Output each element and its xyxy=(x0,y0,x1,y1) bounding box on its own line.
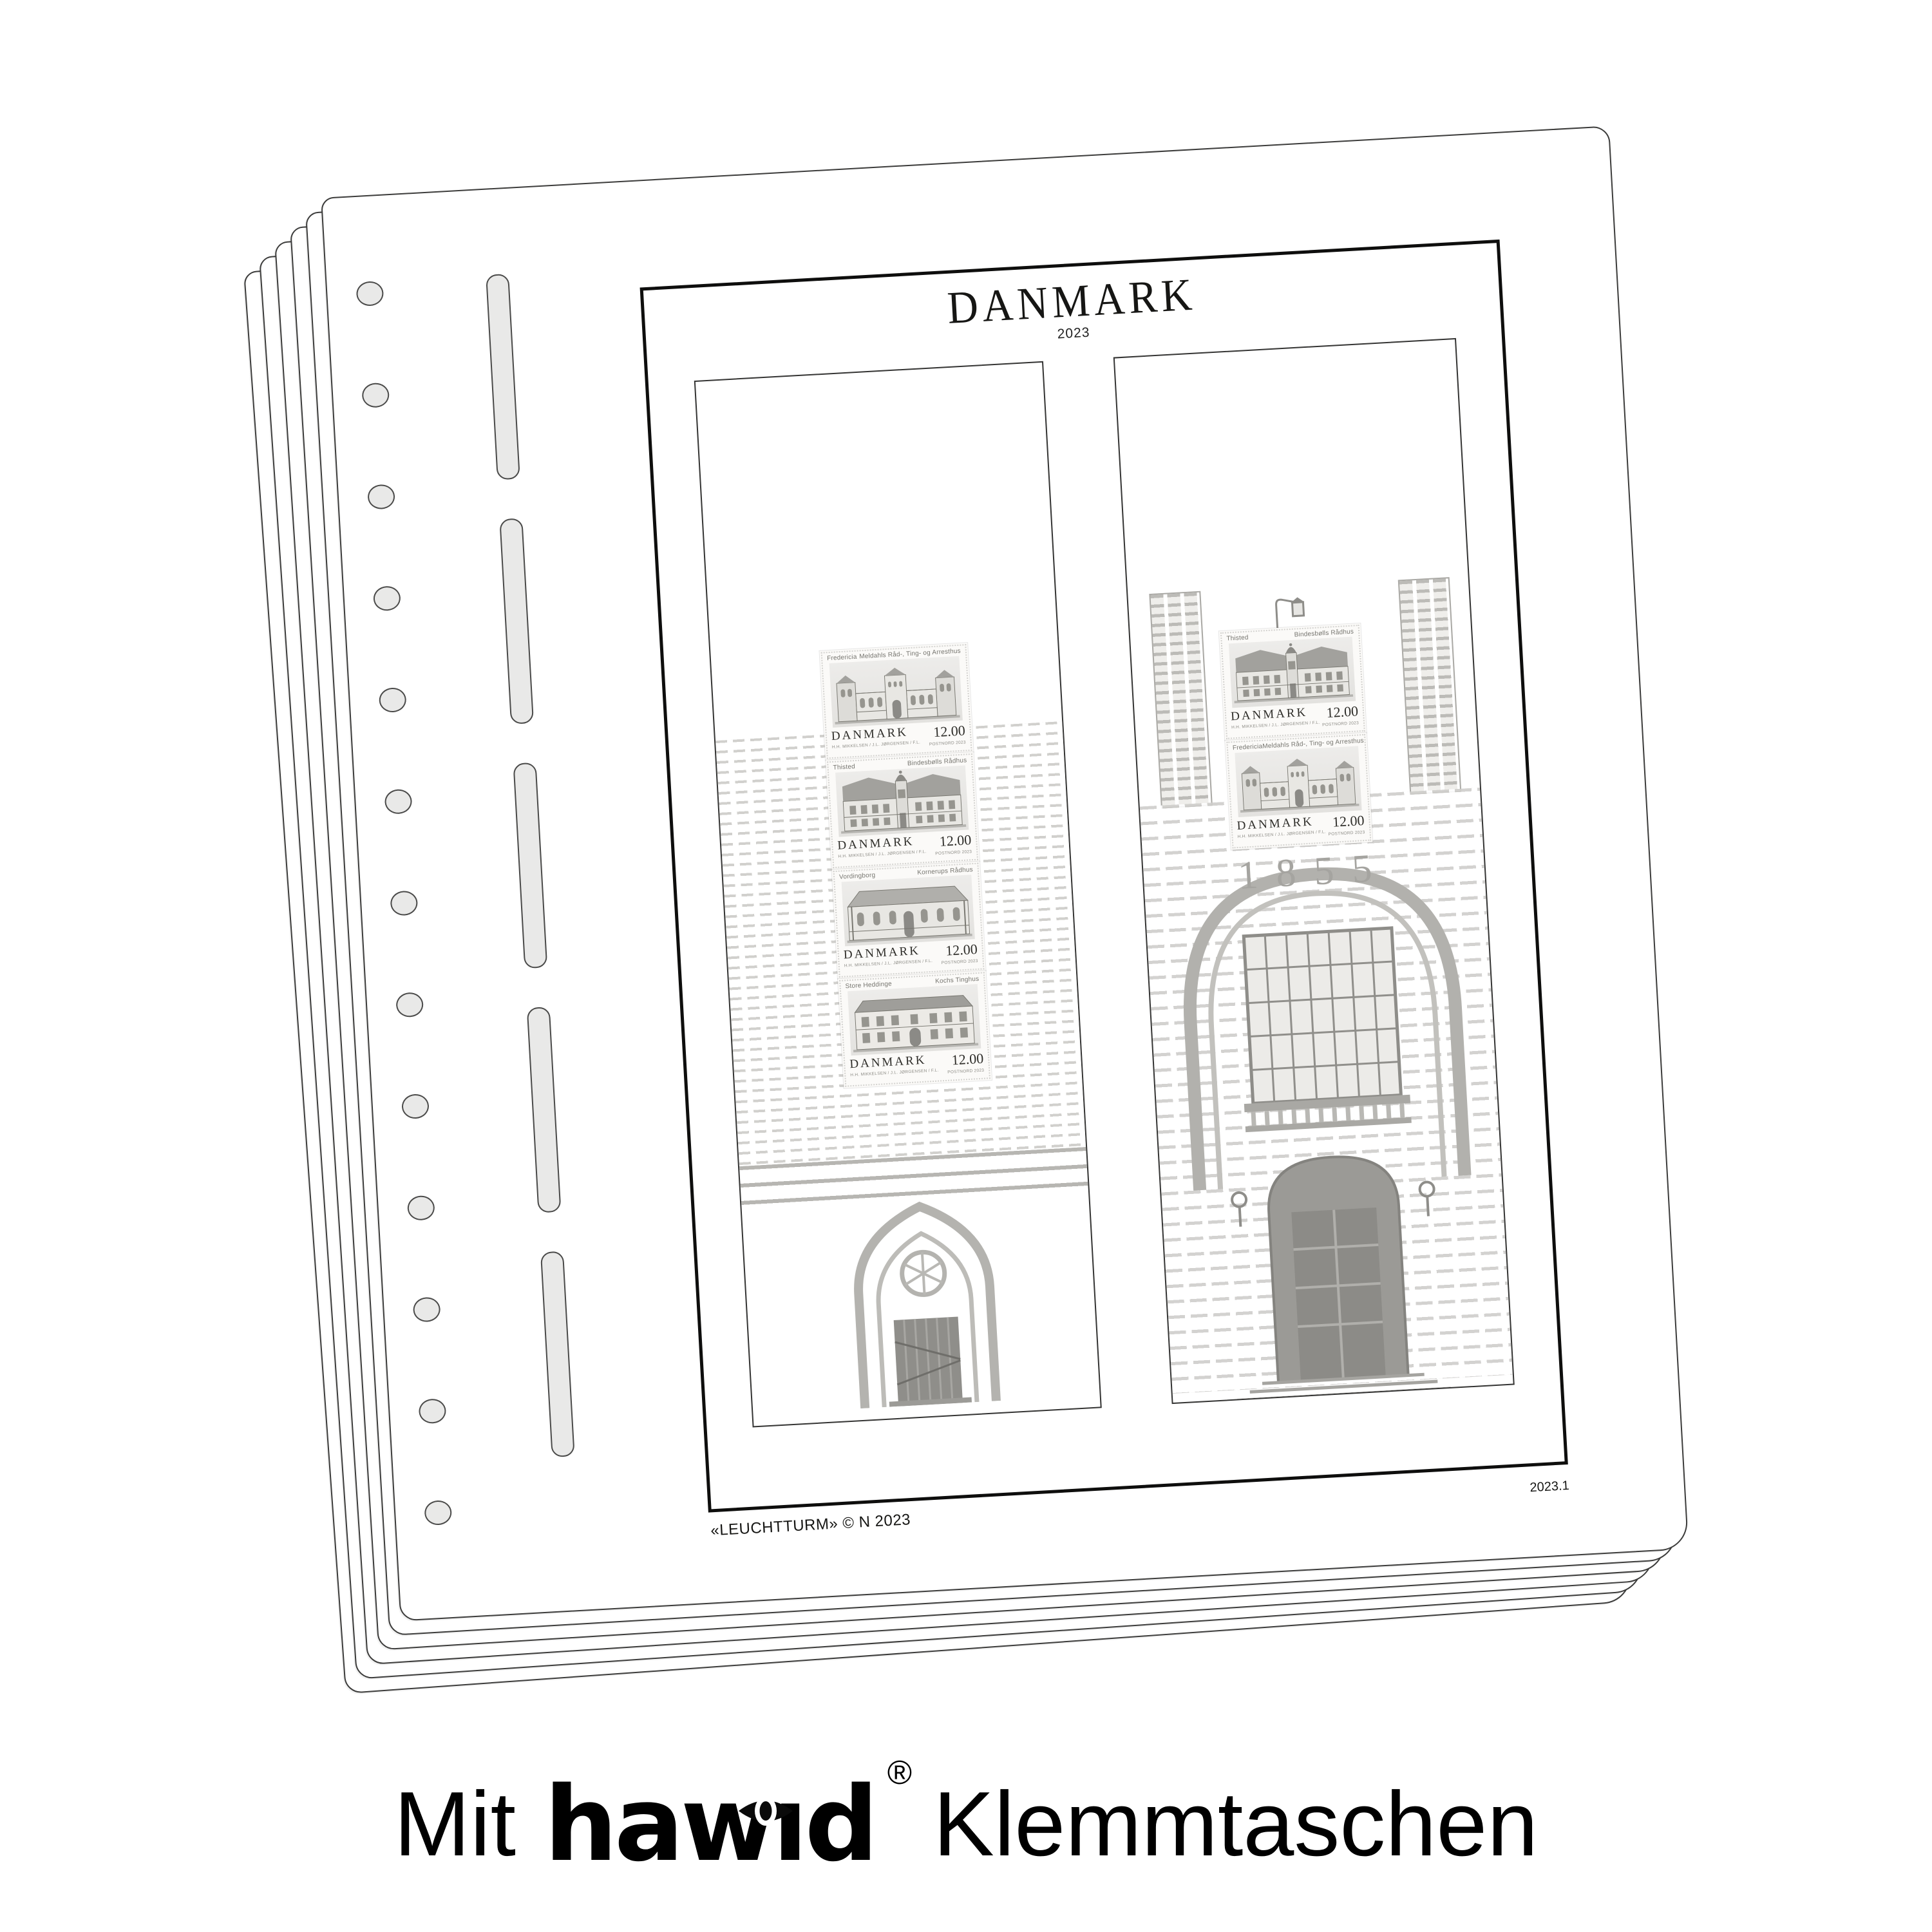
binder-slot xyxy=(499,518,534,724)
caption-prefix: Mit xyxy=(394,1772,516,1877)
stamp-value: 12.00 xyxy=(947,1050,984,1069)
stamp-issue: POSTNORD 2023 xyxy=(942,959,978,965)
binder-hole xyxy=(401,1094,430,1119)
chimney-etching xyxy=(1149,591,1213,809)
binder-slot xyxy=(527,1007,562,1213)
hawid-logo: hawıd ® xyxy=(544,1773,905,1876)
stamp-value: 12.00 xyxy=(940,941,978,960)
stamp-city: Thisted xyxy=(833,763,855,772)
stamp-issue: POSTNORD 2023 xyxy=(929,740,966,746)
binder-hole xyxy=(390,890,418,916)
stamp-value: 12.00 xyxy=(1327,812,1365,831)
townhall-fredericia-etching xyxy=(829,656,963,728)
stamp-city: Thisted xyxy=(1226,634,1249,643)
townhall-vordingborg-etching xyxy=(842,875,975,946)
binder-hole xyxy=(384,789,413,815)
stamp-thisted: ThistedBindesbølls Rådhus DANMARKH.H. MI… xyxy=(1219,623,1367,741)
stamp-store-heddinge: Store HeddingeKochs Tinghus DANMARKH.H. … xyxy=(838,971,992,1088)
stamp-issue: POSTNORD 2023 xyxy=(1322,721,1359,727)
binder-hole xyxy=(418,1398,446,1424)
stamp-issue: POSTNORD 2023 xyxy=(947,1068,984,1075)
binder-hole xyxy=(407,1195,435,1221)
binder-slot xyxy=(486,274,520,480)
stamp-value: 12.00 xyxy=(928,722,965,741)
binder-hole xyxy=(367,484,395,509)
binder-hole xyxy=(373,585,401,611)
binder-hole xyxy=(355,281,384,307)
townhall-kochs-etching xyxy=(848,984,981,1056)
gothic-door-etching xyxy=(842,1188,1008,1412)
eye-icon xyxy=(737,1745,794,1848)
stamp-column-right: 1855 ThistedBindesbølls Rådhus DANMARKH.… xyxy=(1113,338,1515,1404)
stamp-issue: POSTNORD 2023 xyxy=(935,849,972,856)
binder-hole xyxy=(379,687,407,713)
product-image: DANMARK 2023 Fre xyxy=(0,0,1932,1932)
hawid-wordmark: hawıd xyxy=(544,1764,875,1884)
binder-hole xyxy=(395,992,424,1018)
stamp-fredericia: FredericiaMeldahls Råd-, Ting- og Arrest… xyxy=(1225,733,1372,850)
caption-suffix: Klemmtaschen xyxy=(933,1772,1538,1877)
binder-holes xyxy=(322,127,1608,199)
binder-hole xyxy=(413,1296,441,1322)
chimney-etching xyxy=(1398,577,1462,795)
stamp-strip-right: ThistedBindesbølls Rådhus DANMARKH.H. MI… xyxy=(1219,623,1373,850)
stamp-strip-left: FredericiaMeldahls Råd-, Ting- og Arrest… xyxy=(819,643,992,1088)
binder-hole xyxy=(424,1500,452,1526)
townhall-fredericia-etching xyxy=(1235,746,1361,817)
townhall-thisted-etching xyxy=(1229,637,1356,708)
townhall-thisted-etching xyxy=(835,766,969,837)
binder-slot xyxy=(513,762,548,969)
product-caption: Mit hawıd ® Klemmtaschen xyxy=(0,1750,1932,1899)
binder-slot xyxy=(540,1251,575,1458)
binder-hole xyxy=(361,383,390,408)
stamp-thisted: ThistedBindesbølls Rådhus DANMARKH.H. MI… xyxy=(826,752,980,870)
stamp-issue: POSTNORD 2023 xyxy=(1328,830,1365,837)
stamp-vordingborg: VordingborgKornerups Rådhus DANMARKH.H. … xyxy=(831,861,985,979)
stamp-column-left: FredericiaMeldahls Råd-, Ting- og Arrest… xyxy=(694,361,1102,1428)
registered-mark: ® xyxy=(887,1756,909,1790)
stamp-value: 12.00 xyxy=(934,831,972,850)
stamp-city: Vordingborg xyxy=(839,872,876,881)
stamp-fredericia: FredericiaMeldahls Råd-, Ting- og Arrest… xyxy=(819,643,973,761)
binder-slots xyxy=(322,127,1608,199)
stamp-city: Fredericia xyxy=(1233,743,1263,752)
album-sheet-front: DANMARK 2023 Fre xyxy=(321,126,1689,1621)
stamp-city: Fredericia xyxy=(827,654,857,663)
stamp-value: 12.00 xyxy=(1321,703,1358,721)
